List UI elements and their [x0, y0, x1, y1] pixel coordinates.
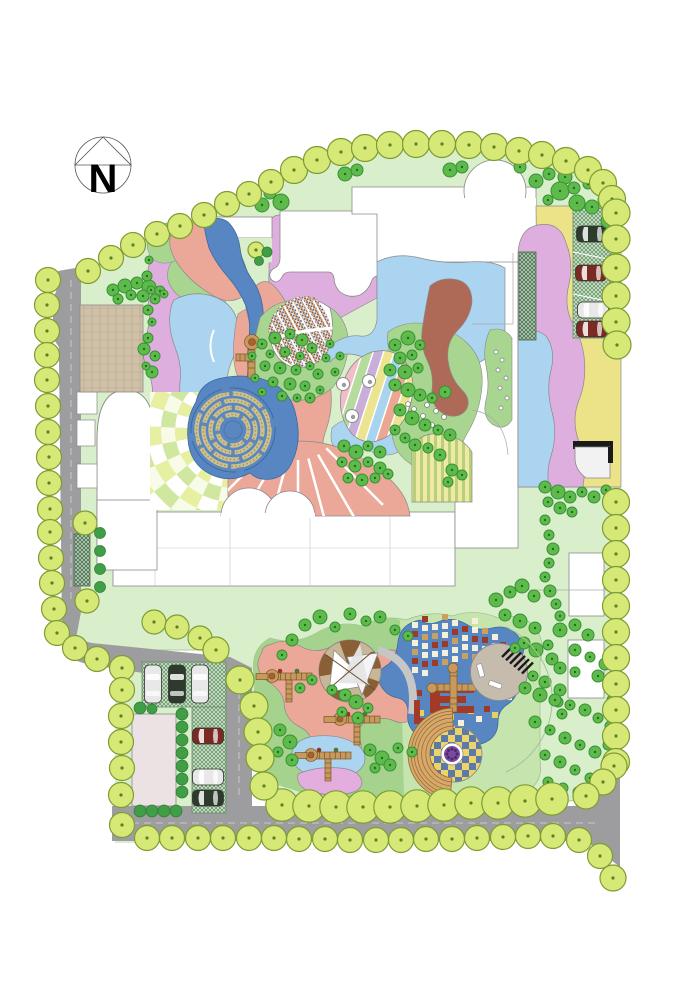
svg-text:N: N: [89, 157, 118, 201]
